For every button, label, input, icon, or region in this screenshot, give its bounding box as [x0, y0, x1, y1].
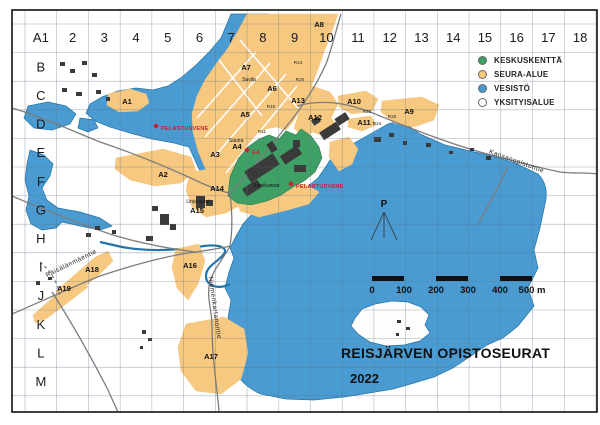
grid-column-label: 8: [259, 30, 266, 45]
grid-column-label: 6: [196, 30, 203, 45]
area-label: A10: [347, 97, 361, 106]
area-label: A3: [210, 150, 220, 159]
grid-row-label: E: [37, 145, 46, 160]
grid-column-label: 9: [291, 30, 298, 45]
grid-row-label: G: [36, 202, 46, 217]
poi-label: Linja-autot: [186, 199, 210, 205]
legend-item: YKSITYISALUE: [478, 97, 562, 107]
grid-row-label: C: [36, 88, 45, 103]
route-point-label: R24: [373, 121, 382, 126]
grid-row-label: L: [37, 345, 44, 360]
grid-column-label: 16: [509, 30, 523, 45]
map-year: 2022: [350, 371, 379, 386]
area-label: A1: [122, 97, 132, 106]
legend-color-dot: [478, 98, 487, 107]
grid-row-label: B: [37, 59, 46, 74]
grid-column-label: 2: [69, 30, 76, 45]
area-label: A17: [204, 352, 218, 361]
grid-row-label: D: [36, 117, 45, 132]
legend-item-label: YKSITYISALUE: [494, 98, 555, 107]
area-label: A8: [314, 20, 324, 29]
north-marker-label: P: [381, 199, 388, 210]
area-label: A2: [158, 170, 168, 179]
area-label: A9: [404, 107, 414, 116]
scale-bar-tick-label: 200: [428, 285, 444, 296]
legend: KESKUSKENTTÄSEURA-ALUEVESISTÖYKSITYISALU…: [478, 55, 562, 111]
grid-row-label: M: [35, 374, 46, 389]
poi-label: Toimikunnat: [253, 183, 280, 189]
area-label: A6: [267, 84, 277, 93]
grid-column-label: 13: [414, 30, 428, 45]
area-label: A19: [57, 284, 71, 293]
scale-bar-tick-label: 400: [492, 285, 508, 296]
route-point-label: R15: [267, 104, 276, 109]
route-point-label: R25: [388, 114, 397, 119]
area-label: A5: [240, 110, 250, 119]
scale-bar-segments: [372, 276, 532, 281]
grid-column-label: 12: [383, 30, 397, 45]
legend-color-dot: [478, 84, 487, 93]
area-label: A18: [85, 265, 99, 274]
poi-label: Suvila: [242, 77, 256, 83]
area-label: A14: [210, 184, 225, 193]
grid-column-label: 4: [132, 30, 139, 45]
legend-item-label: VESISTÖ: [494, 84, 530, 93]
map-title: REISJÄRVEN OPISTOSEURAT: [341, 345, 550, 361]
grid-column-label: 11: [351, 30, 365, 45]
scale-bar-tick-label: 300: [460, 285, 476, 296]
alert-label: PELASTUSVENE: [296, 184, 344, 190]
grid-row-label: H: [36, 231, 45, 246]
grid-column-label: 5: [164, 30, 171, 45]
alert-label: EA: [252, 150, 260, 156]
scale-bar-segment: [468, 276, 500, 281]
grid-column-label: 10: [319, 30, 333, 45]
legend-item-label: KESKUSKENTTÄ: [494, 56, 562, 65]
scale-bar-segment: [372, 276, 404, 281]
grid-row-label: I: [39, 260, 43, 275]
scale-bar-segment: [500, 276, 532, 281]
water-left-lake: [25, 150, 112, 230]
grid-column-label: 17: [541, 30, 555, 45]
legend-item: SEURA-ALUE: [478, 69, 562, 79]
area-label: A15: [190, 206, 204, 215]
legend-item-label: SEURA-ALUE: [494, 70, 548, 79]
legend-item: KESKUSKENTTÄ: [478, 55, 562, 65]
area-label: A7: [241, 63, 251, 72]
scale-bar-tick-label: 100: [396, 285, 412, 296]
grid-row-label: J: [38, 288, 45, 303]
area-label: A12: [308, 113, 322, 122]
legend-color-dot: [478, 70, 487, 79]
scale-bar-segment: [436, 276, 468, 281]
grid-column-label: 18: [573, 30, 587, 45]
legend-color-dot: [478, 56, 487, 65]
map-page: A123456789101112131415161718BCDEFGHIJKLM…: [0, 0, 600, 425]
grid-column-label: A1: [33, 30, 49, 45]
grid-row-label: K: [37, 317, 46, 332]
grid-row-label: F: [37, 174, 45, 189]
area-label: A13: [291, 96, 305, 105]
route-point-label: R11: [258, 129, 267, 134]
grid-column-label: 3: [101, 30, 108, 45]
scale-bar-tick-label: 0: [369, 285, 374, 296]
area-label: A11: [357, 118, 370, 127]
scale-bar-tick-label: 500 m: [519, 285, 546, 296]
scale-bar: 0100200300400500 m: [372, 276, 542, 302]
alert-label: PELASTUSVENE: [161, 126, 209, 132]
water-pond-1: [24, 102, 76, 130]
route-point-label: R14: [294, 60, 303, 65]
area-label: A16: [183, 261, 197, 270]
legend-item: VESISTÖ: [478, 83, 562, 93]
grid-column-label: 7: [228, 30, 235, 45]
route-point-label: R23: [363, 109, 372, 114]
grid-column-label: 14: [446, 30, 460, 45]
route-point-label: R20: [296, 77, 305, 82]
poi-label: Sauna: [229, 138, 244, 144]
scale-bar-segment: [404, 276, 436, 281]
grid-column-label: 15: [478, 30, 492, 45]
